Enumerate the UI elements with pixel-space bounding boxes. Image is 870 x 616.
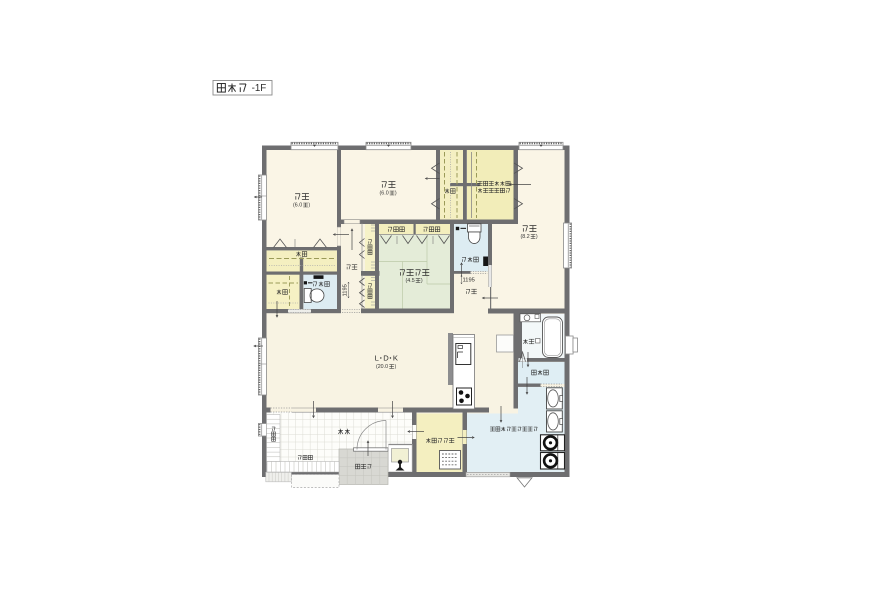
svg-text:(20.0: (20.0 (376, 364, 388, 370)
svg-text:(6.0: (6.0 (380, 191, 389, 197)
svg-text:-1F: -1F (252, 83, 267, 94)
svg-text:D: D (383, 353, 389, 362)
svg-text:(4.5: (4.5 (406, 278, 415, 284)
svg-text:): ) (421, 278, 423, 284)
svg-text:K: K (393, 353, 398, 362)
svg-text:L: L (375, 353, 379, 362)
svg-text:): ) (394, 364, 396, 370)
svg-text:1195: 1195 (463, 277, 475, 283)
svg-text:(6.0: (6.0 (293, 203, 302, 209)
svg-text:): ) (308, 203, 310, 209)
svg-text:): ) (536, 234, 538, 240)
svg-text:(8.2: (8.2 (521, 234, 530, 240)
svg-text:): ) (395, 191, 397, 197)
svg-text:1195: 1195 (342, 284, 348, 296)
